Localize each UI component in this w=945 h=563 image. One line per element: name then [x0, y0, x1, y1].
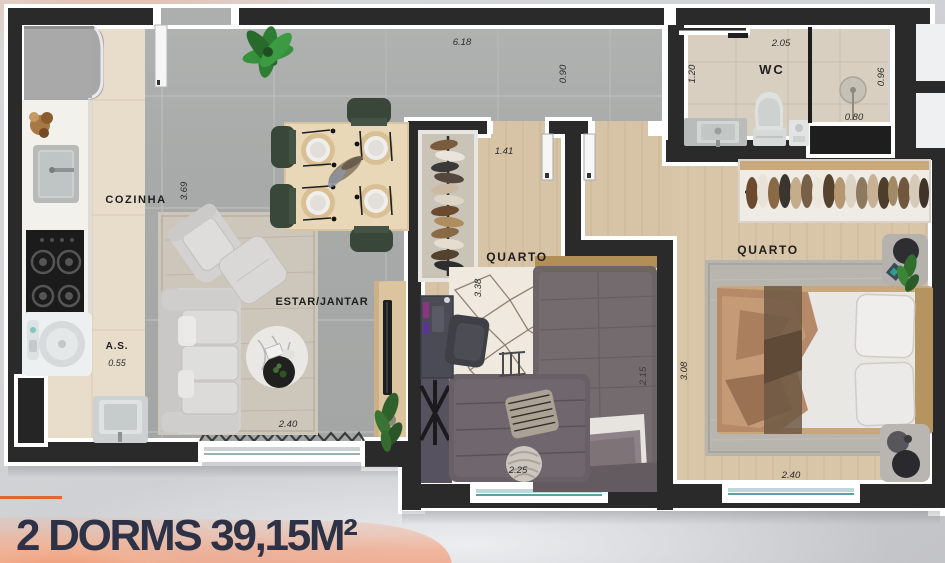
svg-text:2.40: 2.40: [781, 470, 801, 481]
svg-text:2.25: 2.25: [508, 465, 528, 476]
svg-text:QUARTO: QUARTO: [737, 243, 798, 257]
svg-text:2.40: 2.40: [278, 419, 298, 430]
svg-text:0.55: 0.55: [108, 358, 127, 368]
svg-text:0.80: 0.80: [845, 112, 864, 123]
svg-text:6.18: 6.18: [453, 37, 472, 48]
svg-text:QUARTO: QUARTO: [486, 250, 547, 264]
svg-text:3.38: 3.38: [473, 278, 484, 297]
svg-text:ESTAR/JANTAR: ESTAR/JANTAR: [276, 296, 369, 308]
svg-text:3.69: 3.69: [179, 181, 190, 200]
svg-text:3.08: 3.08: [679, 361, 690, 380]
svg-text:A.S.: A.S.: [106, 341, 129, 352]
svg-text:2 DORMS 39,15M²: 2 DORMS 39,15M²: [16, 511, 357, 560]
svg-text:WC: WC: [759, 62, 785, 77]
svg-text:2.15: 2.15: [638, 366, 649, 386]
svg-text:1.41: 1.41: [495, 146, 514, 157]
svg-text:1.20: 1.20: [687, 64, 698, 83]
svg-text:0.90: 0.90: [558, 64, 569, 83]
svg-text:2.05: 2.05: [771, 38, 791, 49]
svg-text:0.96: 0.96: [876, 67, 887, 86]
svg-text:COZINHA: COZINHA: [105, 194, 166, 206]
